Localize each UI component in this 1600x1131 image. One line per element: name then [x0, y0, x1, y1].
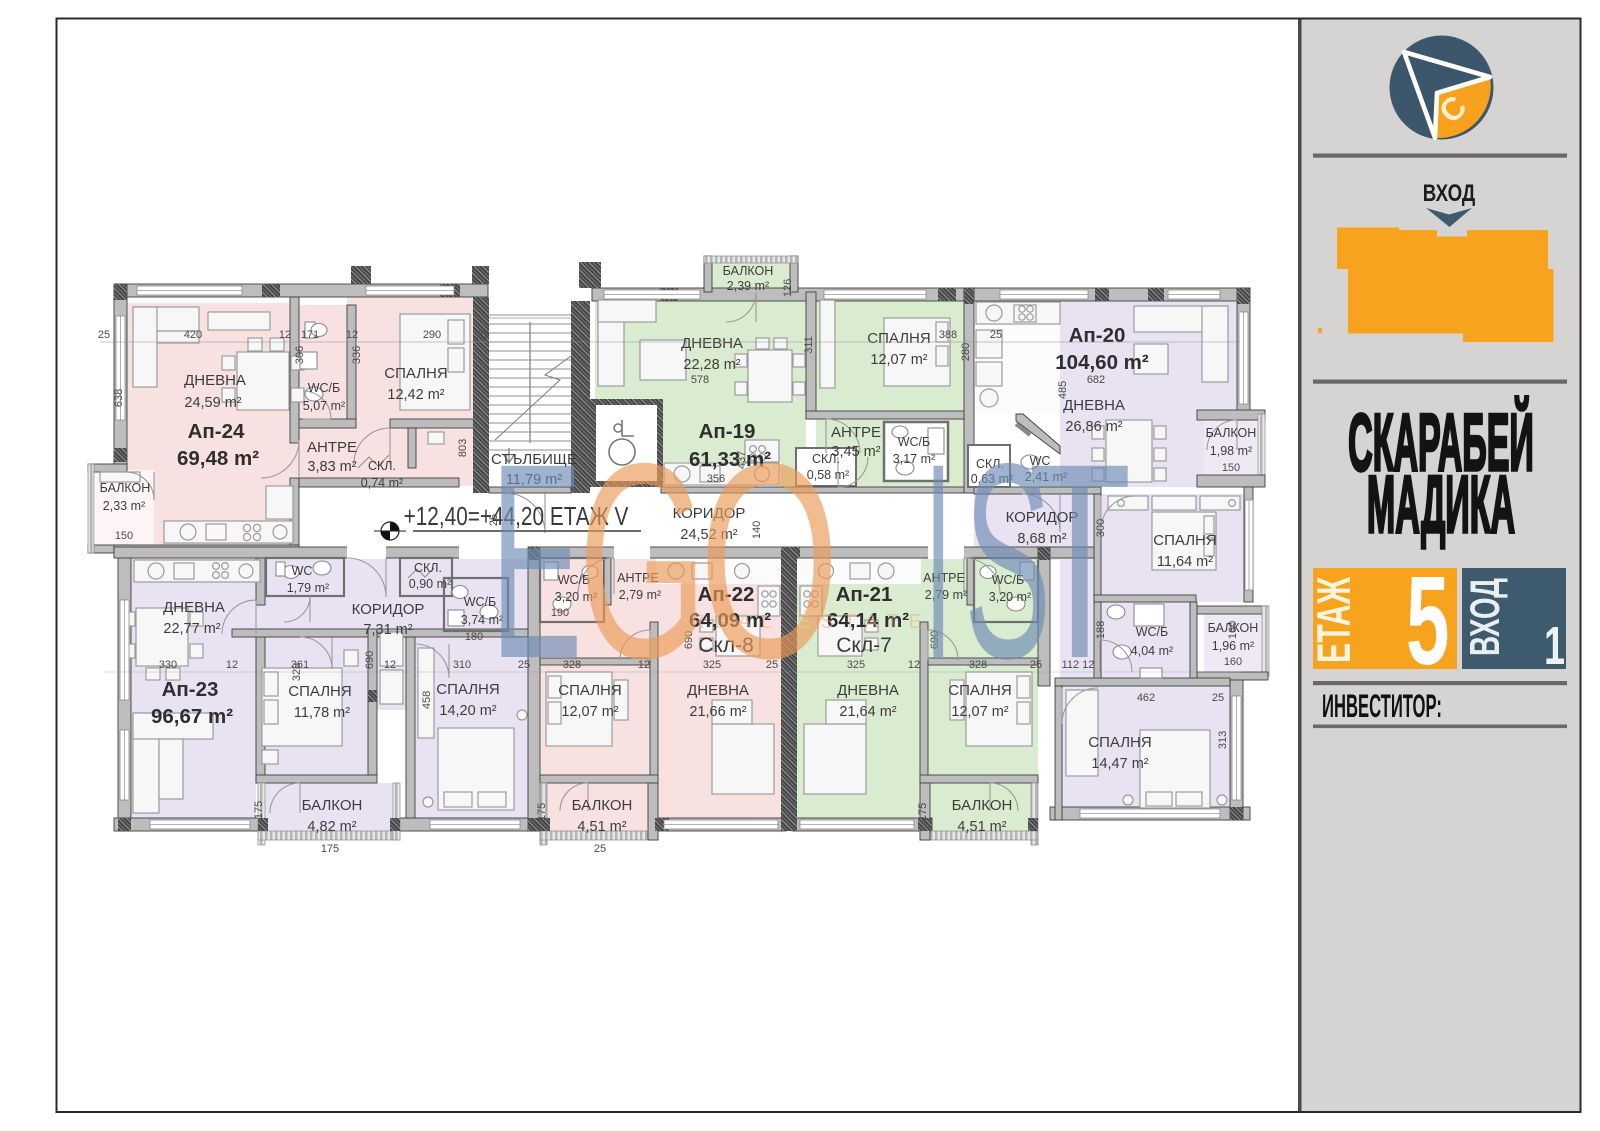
svg-text:WC/Б: WC/Б	[1136, 625, 1169, 639]
svg-text:160: 160	[1224, 656, 1242, 668]
svg-text:311: 311	[803, 336, 815, 354]
svg-text:ЕТАЖ: ЕТАЖ	[1307, 577, 1360, 663]
svg-text:313: 313	[1217, 731, 1229, 749]
svg-text:СКЛ.: СКЛ.	[368, 459, 396, 473]
svg-text:1: 1	[1544, 615, 1565, 675]
svg-text:G: G	[578, 405, 708, 717]
svg-text:Ап-21: Ап-21	[836, 583, 893, 606]
svg-text:WC: WC	[292, 564, 313, 578]
svg-text:325: 325	[847, 659, 865, 671]
svg-text:БАЛКОН: БАЛКОН	[572, 797, 633, 814]
svg-text:ДНЕВНА: ДНЕВНА	[184, 372, 246, 389]
svg-text:СПАЛНЯ: СПАЛНЯ	[288, 683, 351, 700]
svg-text:12: 12	[908, 659, 920, 671]
svg-text:5: 5	[1406, 551, 1449, 692]
svg-text:0,74 m²: 0,74 m²	[361, 476, 403, 490]
svg-text:21,64 m²: 21,64 m²	[839, 704, 896, 720]
svg-text:REAL ESTATE: REAL ESTATE	[690, 611, 932, 633]
svg-text:12: 12	[346, 329, 358, 341]
svg-text:ДНЕВНА: ДНЕВНА	[681, 335, 743, 352]
svg-text:175: 175	[321, 843, 339, 855]
svg-text:2,33 m²: 2,33 m²	[103, 499, 145, 513]
svg-text:175: 175	[536, 803, 548, 821]
svg-text:I: I	[924, 406, 953, 716]
svg-text:25: 25	[990, 329, 1002, 341]
svg-text:1,79 m²: 1,79 m²	[287, 581, 329, 595]
svg-text:25: 25	[98, 329, 110, 341]
svg-text:25: 25	[594, 843, 606, 855]
svg-text:ИНВЕСТИТОР:: ИНВЕСТИТОР:	[1322, 689, 1442, 724]
svg-text:БАЛКОН: БАЛКОН	[302, 797, 363, 814]
svg-text:310: 310	[453, 659, 471, 671]
svg-text:СПАЛНЯ: СПАЛНЯ	[1088, 734, 1151, 751]
svg-text:ДНЕВНА: ДНЕВНА	[163, 599, 225, 616]
svg-text:БАЛКОН: БАЛКОН	[1206, 426, 1257, 440]
svg-text:462: 462	[1137, 692, 1155, 704]
svg-text:12: 12	[384, 659, 396, 671]
svg-text:5,07 m²: 5,07 m²	[303, 399, 345, 413]
svg-text:104,60 m²: 104,60 m²	[1055, 351, 1149, 374]
svg-text:24,59 m²: 24,59 m²	[184, 395, 241, 411]
svg-text:330: 330	[159, 659, 177, 671]
svg-text:485: 485	[1057, 381, 1069, 399]
svg-text:4,04 m²: 4,04 m²	[1131, 644, 1173, 658]
svg-text:СПАЛНЯ: СПАЛНЯ	[867, 330, 930, 347]
svg-text:ВХОД: ВХОД	[1423, 180, 1475, 207]
svg-text:22,77 m²: 22,77 m²	[163, 621, 220, 637]
svg-text:150: 150	[115, 530, 133, 542]
svg-text:Скл-7: Скл-7	[836, 634, 892, 657]
svg-text:690: 690	[364, 651, 376, 669]
svg-text:СПАЛНЯ: СПАЛНЯ	[1153, 532, 1216, 549]
svg-text:175: 175	[253, 801, 265, 819]
svg-text:420: 420	[184, 329, 202, 341]
svg-text:22,28 m²: 22,28 m²	[683, 357, 740, 373]
svg-text:25: 25	[477, 329, 489, 341]
svg-text:175: 175	[917, 803, 929, 821]
svg-text:4,82 m²: 4,82 m²	[307, 819, 356, 835]
svg-text:Ап-24: Ап-24	[188, 420, 245, 443]
svg-text:1,98 m²: 1,98 m²	[1210, 444, 1252, 458]
svg-text:160: 160	[1227, 621, 1239, 639]
svg-text:0,90 m²: 0,90 m²	[409, 577, 451, 591]
svg-text:578: 578	[691, 374, 709, 386]
svg-text:БАЛКОН: БАЛКОН	[952, 797, 1013, 814]
svg-text:T: T	[1028, 406, 1132, 716]
svg-text:ВХОД: ВХОД	[1461, 578, 1508, 656]
svg-text:306: 306	[294, 346, 306, 364]
svg-text:11,64 m²: 11,64 m²	[1157, 554, 1213, 570]
svg-text:361: 361	[291, 659, 309, 671]
svg-text:14,20 m²: 14,20 m²	[439, 703, 496, 719]
svg-text:БАЛКОН: БАЛКОН	[723, 264, 774, 278]
svg-text:E: E	[490, 405, 583, 716]
svg-text:Ап-23: Ап-23	[162, 678, 219, 701]
svg-text:638: 638	[113, 389, 125, 407]
svg-text:СКЛ.: СКЛ.	[414, 561, 442, 575]
svg-text:3,83 m²: 3,83 m²	[307, 459, 356, 475]
svg-text:12: 12	[279, 329, 291, 341]
svg-text:МАДИКА: МАДИКА	[1367, 460, 1515, 550]
svg-text:КОРИДОР: КОРИДОР	[352, 601, 425, 618]
svg-text:4,51 m²: 4,51 m²	[957, 819, 1006, 835]
svg-text:336: 336	[351, 346, 363, 364]
svg-text:WC/Б: WC/Б	[308, 381, 341, 395]
svg-text:7,31 m²: 7,31 m²	[363, 622, 412, 638]
svg-text:150: 150	[1222, 462, 1240, 474]
svg-text:СПАЛНЯ: СПАЛНЯ	[384, 365, 447, 382]
svg-text:25: 25	[1212, 692, 1224, 704]
svg-text:12: 12	[226, 659, 238, 671]
svg-text:682: 682	[1087, 374, 1105, 386]
svg-text:O: O	[699, 406, 840, 717]
svg-text:2,39 m²: 2,39 m²	[727, 279, 769, 293]
svg-text:ДНЕВНА: ДНЕВНА	[837, 682, 899, 699]
svg-text:280: 280	[960, 343, 972, 361]
svg-text:Ап-20: Ап-20	[1069, 324, 1126, 347]
svg-text:388: 388	[939, 329, 957, 341]
svg-text:803: 803	[457, 439, 469, 457]
svg-text:12,42 m²: 12,42 m²	[387, 387, 444, 403]
svg-text:АНТРЕ: АНТРЕ	[307, 439, 357, 456]
svg-text:БАЛКОН: БАЛКОН	[100, 481, 151, 495]
svg-text:4,51 m²: 4,51 m²	[577, 819, 626, 835]
svg-text:171: 171	[301, 329, 319, 341]
svg-text:12,07 m²: 12,07 m²	[870, 352, 927, 368]
svg-text:126: 126	[782, 279, 794, 297]
svg-text:11,78 m²: 11,78 m²	[294, 705, 350, 721]
svg-text:1,96 m²: 1,96 m²	[1212, 639, 1254, 653]
svg-text:69,48 m²: 69,48 m²	[177, 447, 259, 470]
svg-text:458: 458	[421, 691, 433, 709]
svg-text:290: 290	[423, 329, 441, 341]
svg-text:14,47 m²: 14,47 m²	[1091, 756, 1148, 772]
svg-text:96,67 m²: 96,67 m²	[151, 705, 233, 728]
svg-text:180: 180	[465, 631, 483, 643]
